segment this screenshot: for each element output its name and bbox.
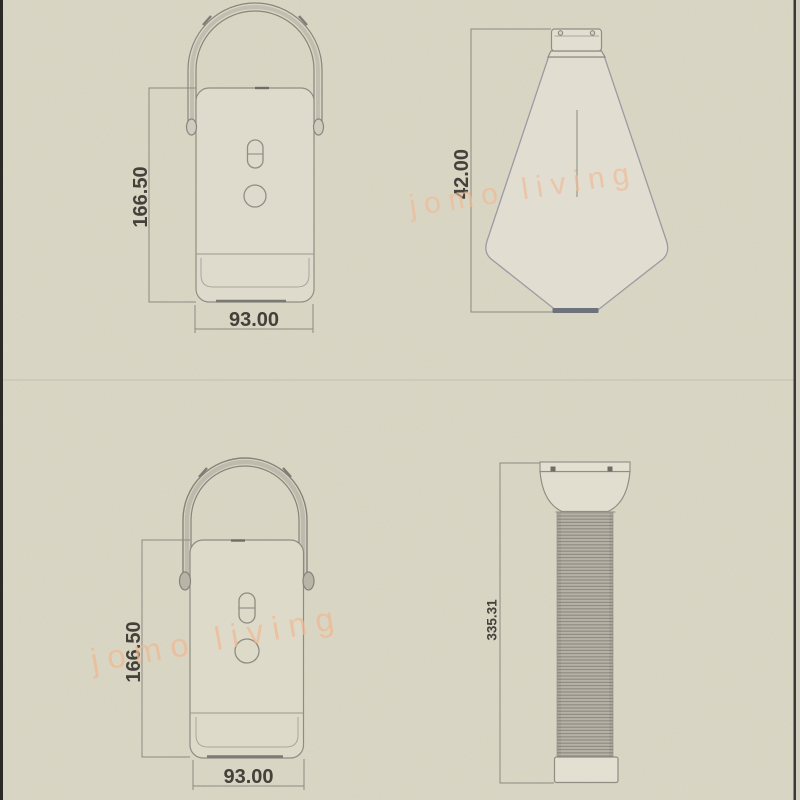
shade-collar <box>548 51 605 57</box>
height-dimension-label: 166.50 <box>130 166 152 227</box>
height-dimension-label: 335.31 <box>485 599 500 641</box>
right-edge-light-strip <box>796 0 800 800</box>
pole-column-shade-left <box>557 513 561 757</box>
cap-bolt-right <box>608 467 613 472</box>
cap-bolt-left <box>551 467 556 472</box>
lamp-body <box>196 88 314 302</box>
cap-screw-right <box>590 31 594 35</box>
width-dimension-label: 93.00 <box>229 309 279 331</box>
cap-screw-left <box>558 31 562 35</box>
drawing-svg: 166.50 93.00 42.00 166.50 93.00 335.31 j… <box>0 0 800 800</box>
width-dimension-label: 93.00 <box>223 766 273 788</box>
pole-shoulder <box>540 472 630 512</box>
right-edge-dark-border <box>794 0 797 800</box>
blueprint-canvas: 166.50 93.00 42.00 166.50 93.00 335.31 j… <box>0 0 800 800</box>
handle-hinge-left <box>187 119 197 135</box>
pole-column-shade-right <box>609 513 613 757</box>
pole-column <box>557 513 613 757</box>
shade-bottom-bar <box>553 308 599 313</box>
left-edge-border <box>0 0 3 800</box>
pole-base <box>555 757 619 783</box>
handle-hinge-right <box>303 572 314 590</box>
handle-hinge-right <box>314 119 324 135</box>
handle-hinge-left <box>180 572 191 590</box>
paper-grain <box>0 0 800 800</box>
